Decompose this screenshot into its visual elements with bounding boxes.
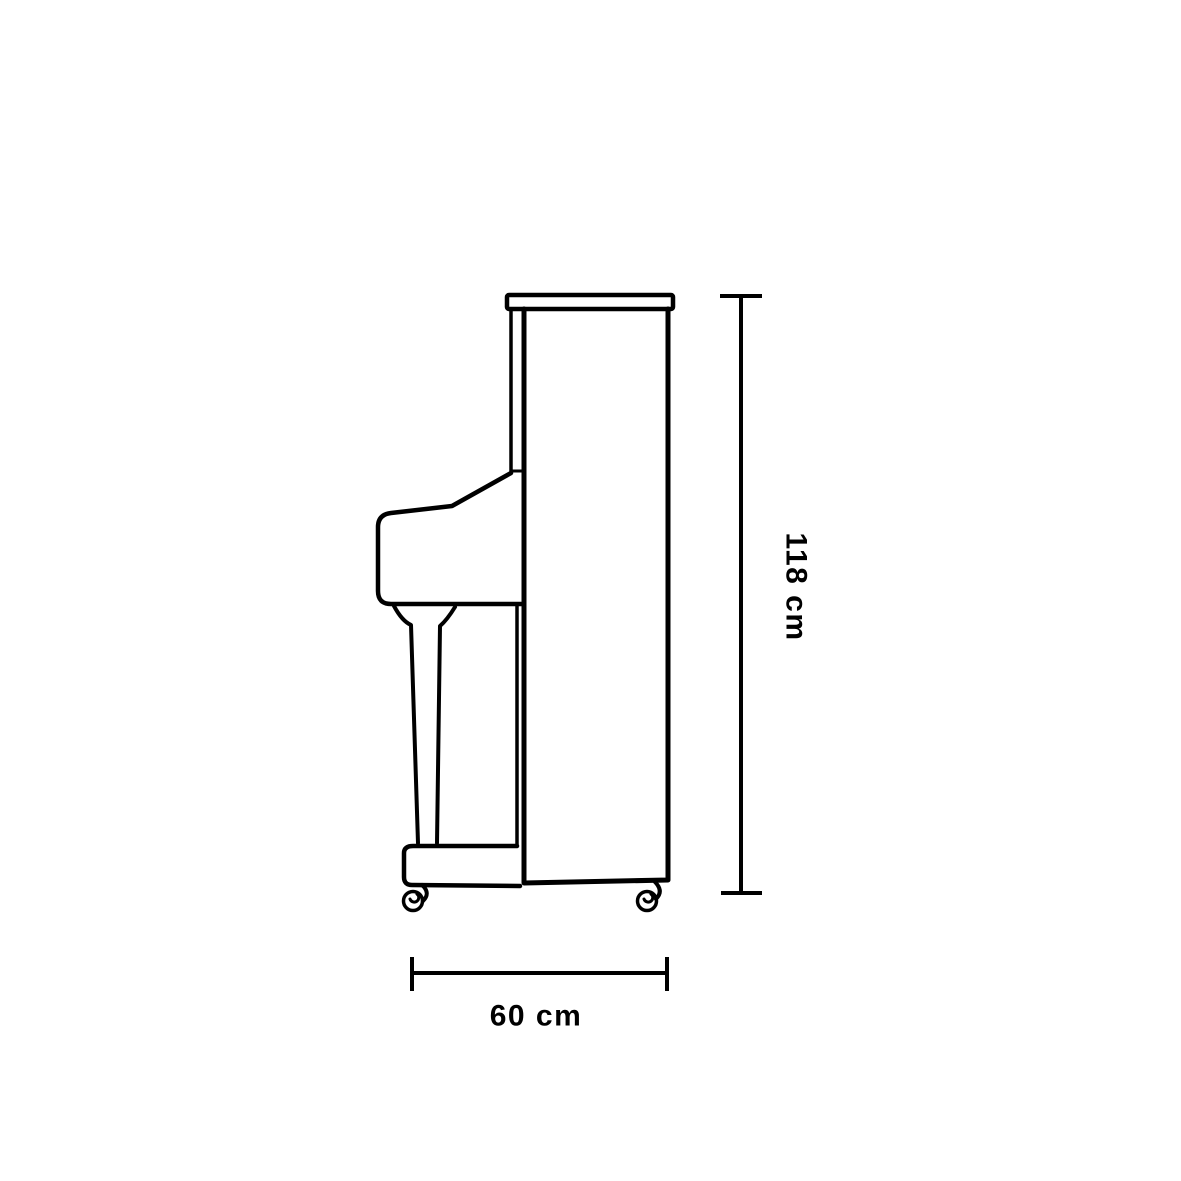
height-dimension-line xyxy=(720,296,762,893)
caster-right-bracket xyxy=(655,882,660,899)
caster-right xyxy=(638,882,660,911)
caster-left-inner-curl xyxy=(410,894,419,902)
upright-piano-side-view-diagram: 118 cm 60 cm xyxy=(0,0,1181,1181)
depth-dimension-label: 60 cm xyxy=(490,1000,583,1033)
depth-dimension-line xyxy=(412,957,667,991)
piano-line-art xyxy=(378,295,673,911)
piano-leg-front-edge xyxy=(394,606,418,843)
piano-cabinet-outline xyxy=(524,309,668,883)
height-dimension-label: 118 cm xyxy=(780,532,813,641)
piano-pedal-box xyxy=(404,846,520,886)
piano-leg-back-edge xyxy=(437,607,455,843)
caster-right-inner-curl xyxy=(644,894,653,902)
caster-left xyxy=(404,885,427,911)
caster-left-bracket xyxy=(422,885,427,901)
diagram-canvas: 118 cm 60 cm xyxy=(0,0,1181,1181)
piano-keyboard-block xyxy=(378,473,524,604)
piano-top-lid xyxy=(507,295,673,309)
